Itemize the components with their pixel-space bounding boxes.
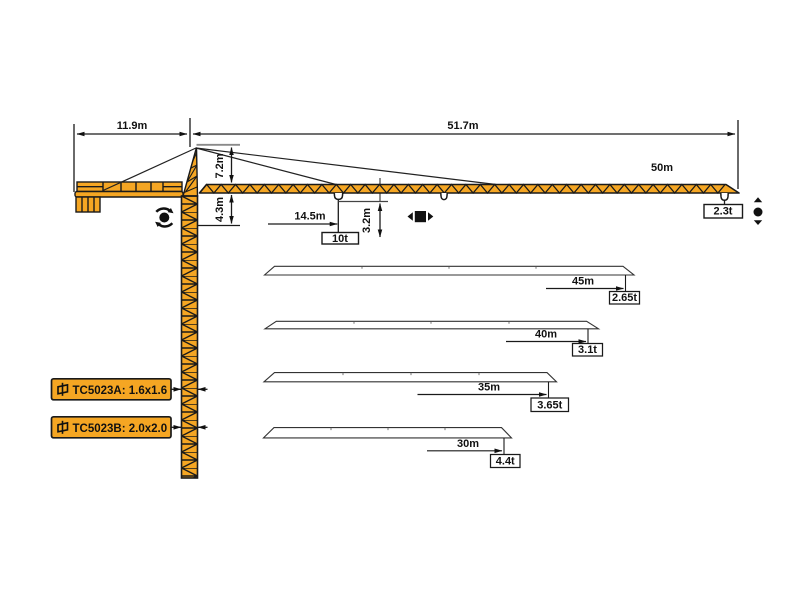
svg-text:7.2m: 7.2m [214, 153, 226, 178]
svg-text:14.5m: 14.5m [294, 211, 325, 223]
svg-text:3.2m: 3.2m [361, 208, 373, 233]
svg-text:2.3t: 2.3t [714, 206, 733, 218]
svg-text:3.1t: 3.1t [578, 344, 597, 356]
svg-text:TC5023A: 1.6x1.6: TC5023A: 1.6x1.6 [73, 385, 168, 397]
svg-text:35m: 35m [478, 382, 500, 394]
svg-text:51.7m: 51.7m [447, 120, 478, 132]
svg-text:TC5023B: 2.0x2.0: TC5023B: 2.0x2.0 [73, 423, 168, 435]
svg-text:40m: 40m [535, 329, 557, 341]
svg-text:45m: 45m [572, 276, 594, 288]
svg-text:3.65t: 3.65t [537, 400, 562, 412]
svg-text:10t: 10t [332, 233, 348, 245]
svg-text:4.4t: 4.4t [496, 456, 515, 468]
svg-text:50m: 50m [651, 162, 673, 174]
svg-text:2.65t: 2.65t [612, 292, 637, 304]
svg-text:4.3m: 4.3m [214, 197, 226, 222]
svg-text:30m: 30m [457, 438, 479, 450]
svg-text:11.9m: 11.9m [117, 120, 148, 132]
